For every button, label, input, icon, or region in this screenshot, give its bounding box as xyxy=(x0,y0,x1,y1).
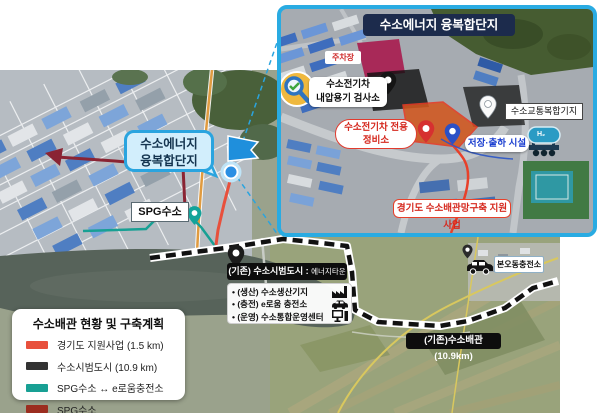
small-car-icon xyxy=(331,299,348,309)
legend-item-spg-eroum: SPG수소 ↔ e로움충전소 xyxy=(12,380,185,395)
inspection-station-label: 수소전기차 내압용기 검사소 xyxy=(309,77,387,107)
legend-swatch-pilot-city xyxy=(26,362,48,370)
complex-callout: 수소에너지 융복합단지 xyxy=(124,130,214,172)
pilot-city-tag: (기존) 수소시범도시 : 에너지타운 xyxy=(227,263,347,280)
callout-line1: 수소에너지 xyxy=(127,136,211,153)
pilot-city-prefix: (기존) 수소시범도시 : xyxy=(228,266,308,276)
parking-label: 주차장 xyxy=(325,51,361,64)
storage-shipping-label: 저장·출하 시설 xyxy=(465,135,529,152)
spg-hydrogen-label: SPG수소 xyxy=(131,202,189,222)
legend-item-pilot-city: 수소시범도시 (10.9 km) xyxy=(12,359,185,374)
legend-swatch-spg xyxy=(26,405,48,413)
legend-item-gyeonggi: 경기도 지원사업 (1.5 km) xyxy=(12,337,185,352)
repair-shop-label: 수소전기차 전용 정비소 xyxy=(335,119,417,149)
pilot-item-operation: • (운영) 수소통합운영센터 xyxy=(232,311,347,323)
complex-location-marker xyxy=(222,163,240,181)
pipeline-project-label: 경기도 수소배관망구축 지원사업 xyxy=(393,199,511,218)
legend-title: 수소배관 현황 및 구축계획 xyxy=(12,315,185,332)
pilot-city-info-box: • (생산) 수소생산기지 • (충전) e로움 충전소 • (운영) 수소통합… xyxy=(227,283,352,324)
factory-icon xyxy=(332,286,348,298)
transport-hub-label: 수소교통복합기지 xyxy=(505,103,583,120)
inset-detail-map: 수소에너지 융복합단지 주차장 수소전기차 내압용기 검사소 수소전기차 전용 … xyxy=(277,5,597,237)
legend-item-spg: SPG수소 xyxy=(12,402,185,413)
pilot-item-charging: • (충전) e로움 충전소 xyxy=(232,298,347,310)
bono-station-label: 본오동충전소 xyxy=(494,256,544,273)
tank-h2-text: H₂ xyxy=(537,131,545,138)
callout-line2: 융복합단지 xyxy=(127,153,211,170)
legend-swatch-spg-eroum xyxy=(26,384,48,392)
hydrogen-pipeline-infographic: 수소에너지 융복합단지 SPG수소 (기존) 수소시범도시 : 에너지타운 • … xyxy=(0,0,600,413)
legend-panel: 수소배관 현황 및 구축계획 경기도 지원사업 (1.5 km) 수소시범도시 … xyxy=(12,309,185,400)
pilot-city-suffix: 에너지타운 xyxy=(311,267,346,276)
inset-title: 수소에너지 융복합단지 xyxy=(363,14,515,36)
legend-swatch-gyeonggi xyxy=(26,341,48,349)
existing-pipeline-tag: (기존)수소배관(10.9km) xyxy=(406,333,501,349)
pilot-item-production: • (생산) 수소생산기지 xyxy=(232,286,347,298)
monitor-icon xyxy=(332,310,348,323)
